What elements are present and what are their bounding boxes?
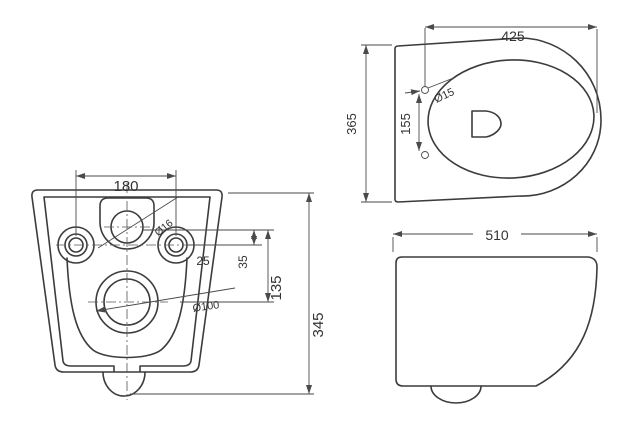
top-seat-hole-upper bbox=[422, 87, 429, 94]
front-dim-35-label: 35 bbox=[236, 255, 250, 269]
top-hole-pointer bbox=[405, 91, 420, 93]
side-outlet-bump bbox=[431, 386, 481, 403]
front-dim-345-label: 345 bbox=[310, 312, 327, 337]
top-dim-425: 425 bbox=[425, 27, 597, 113]
front-hole-dia-label: Ø16 bbox=[152, 217, 175, 239]
front-view: 180 345 135 35 25 Ø16 Ø100 bbox=[32, 170, 327, 400]
top-dim-155: 155 bbox=[398, 94, 419, 151]
top-flush-opening bbox=[472, 111, 501, 137]
front-outlet-bump bbox=[103, 372, 145, 396]
side-dim-510-label: 510 bbox=[485, 227, 509, 243]
front-dim-180-label: 180 bbox=[113, 178, 138, 195]
top-hole-dia-label: Ø15 bbox=[432, 86, 456, 106]
side-body-outline bbox=[396, 257, 597, 386]
front-drain-dia-label: Ø100 bbox=[192, 299, 220, 315]
top-dim-365-label: 365 bbox=[344, 113, 359, 135]
drawing-canvas: 180 345 135 35 25 Ø16 Ø100 bbox=[0, 0, 622, 436]
top-dim-425-label: 425 bbox=[501, 28, 525, 44]
side-dim-510: 510 bbox=[393, 227, 597, 252]
top-rim-inner bbox=[425, 56, 597, 183]
top-dim-365: 365 bbox=[344, 45, 392, 202]
drawing-sheet: 180 345 135 35 25 Ø16 Ø100 bbox=[0, 0, 622, 436]
front-drain-recess bbox=[67, 258, 187, 358]
front-dim-135-label: 135 bbox=[268, 275, 285, 300]
top-dim-155-label: 155 bbox=[398, 113, 413, 135]
front-dim-25-label: 25 bbox=[196, 254, 210, 268]
front-centerlines bbox=[56, 183, 196, 400]
top-seat-hole-lower bbox=[422, 152, 429, 159]
top-view: Ø15 155 425 365 bbox=[344, 27, 601, 202]
top-hole-dia-leader bbox=[428, 77, 456, 88]
side-view: 510 bbox=[393, 227, 597, 403]
